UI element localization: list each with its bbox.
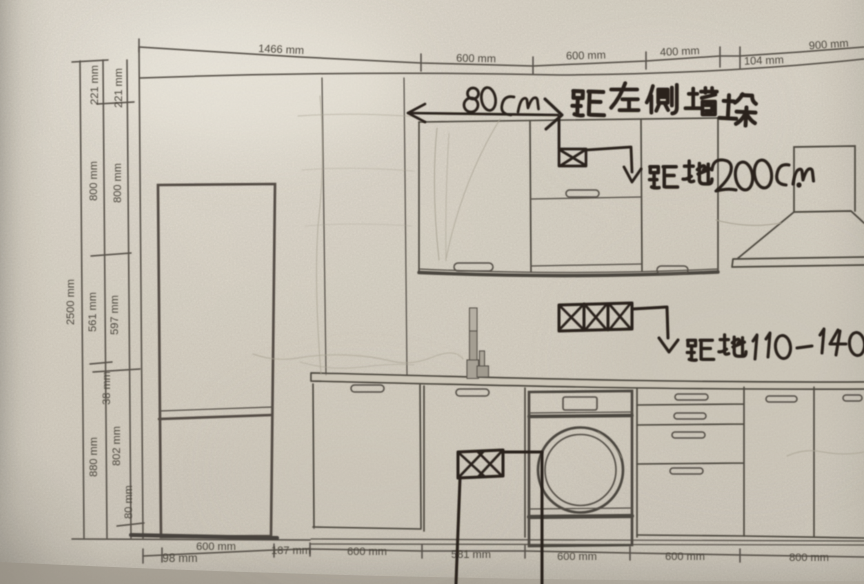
svg-text:1466 mm: 1466 mm <box>258 43 304 57</box>
svg-text:221 mm: 221 mm <box>89 65 101 105</box>
svg-text:2500 mm: 2500 mm <box>65 279 77 325</box>
svg-text:802 mm: 802 mm <box>111 426 123 466</box>
svg-text:221 mm: 221 mm <box>113 68 125 108</box>
svg-text:800 mm: 800 mm <box>789 552 829 564</box>
svg-text:104 mm: 104 mm <box>744 54 784 67</box>
svg-text:80 mm: 80 mm <box>123 485 135 519</box>
svg-text:597 mm: 597 mm <box>109 295 121 335</box>
svg-text:600 mm: 600 mm <box>665 551 705 563</box>
svg-text:600 mm: 600 mm <box>347 546 387 558</box>
svg-text:38 mm: 38 mm <box>101 371 113 405</box>
svg-text:800 mm: 800 mm <box>88 161 100 201</box>
svg-text:600 mm: 600 mm <box>566 49 606 62</box>
svg-text:600 mm: 600 mm <box>557 551 597 563</box>
svg-text:800 mm: 800 mm <box>112 163 124 203</box>
svg-text:561 mm: 561 mm <box>87 292 99 332</box>
svg-text:187 mm: 187 mm <box>271 545 311 557</box>
svg-text:400 mm: 400 mm <box>660 45 700 59</box>
svg-text:600 mm: 600 mm <box>196 541 236 553</box>
svg-text:600 mm: 600 mm <box>456 53 496 66</box>
svg-text:98 mm: 98 mm <box>162 553 197 565</box>
svg-text:880 mm: 880 mm <box>88 437 100 477</box>
